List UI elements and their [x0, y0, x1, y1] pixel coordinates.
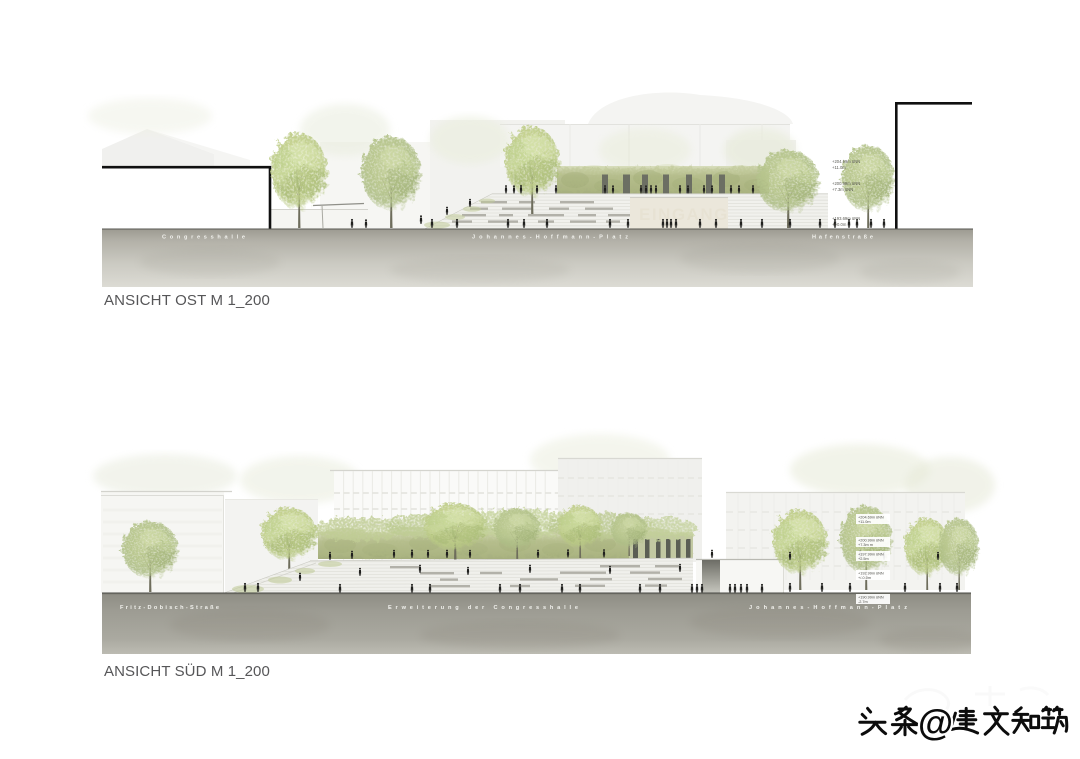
svg-text:EINGANG: EINGANG — [639, 205, 729, 224]
svg-text:+2.5m: +2.5m — [858, 557, 869, 561]
svg-text:+11.0m: +11.0m — [858, 520, 871, 524]
svg-text:+200.99m üNN: +200.99m üNN — [858, 539, 884, 543]
svg-text:ANSICHT SÜD M 1_200: ANSICHT SÜD M 1_200 — [104, 662, 271, 680]
svg-text:+/-0.0m: +/-0.0m — [832, 222, 847, 227]
svg-text:+204.69m üNN: +204.69m üNN — [832, 159, 860, 164]
svg-text:Johannes-Hoffmann-Platz: Johannes-Hoffmann-Platz — [472, 235, 631, 241]
svg-text:@: @ — [918, 702, 953, 743]
svg-text:Hafenstraße: Hafenstraße — [812, 235, 875, 241]
svg-text:ANSICHT OST M 1_200: ANSICHT OST M 1_200 — [104, 292, 271, 309]
svg-text:+197.99m üNN: +197.99m üNN — [858, 553, 884, 557]
svg-text:+7.3m üNN: +7.3m üNN — [832, 187, 853, 192]
svg-text:Fritz-Dobisch-Straße: Fritz-Dobisch-Straße — [120, 605, 221, 611]
svg-text:+190.99m üNN: +190.99m üNN — [858, 596, 884, 600]
svg-text:Congresshalle: Congresshalle — [162, 235, 248, 241]
svg-text:+193.69m üNN: +193.69m üNN — [832, 216, 860, 221]
svg-text:+11.0m: +11.0m — [832, 165, 846, 170]
svg-text:Erweiterung der Congresshalle: Erweiterung der Congresshalle — [388, 605, 581, 611]
svg-text:Johannes-Hoffmann-Platz: Johannes-Hoffmann-Platz — [749, 605, 910, 611]
svg-text:+204.69m üNN: +204.69m üNN — [858, 516, 884, 520]
svg-text:+7.3m m: +7.3m m — [858, 543, 873, 547]
svg-text:+/-0.0m: +/-0.0m — [858, 576, 871, 580]
svg-text:+200.99m üNN: +200.99m üNN — [832, 181, 860, 186]
svg-text:+192.99m üNN: +192.99m üNN — [858, 572, 884, 576]
svg-text:-2.7m: -2.7m — [858, 600, 868, 604]
